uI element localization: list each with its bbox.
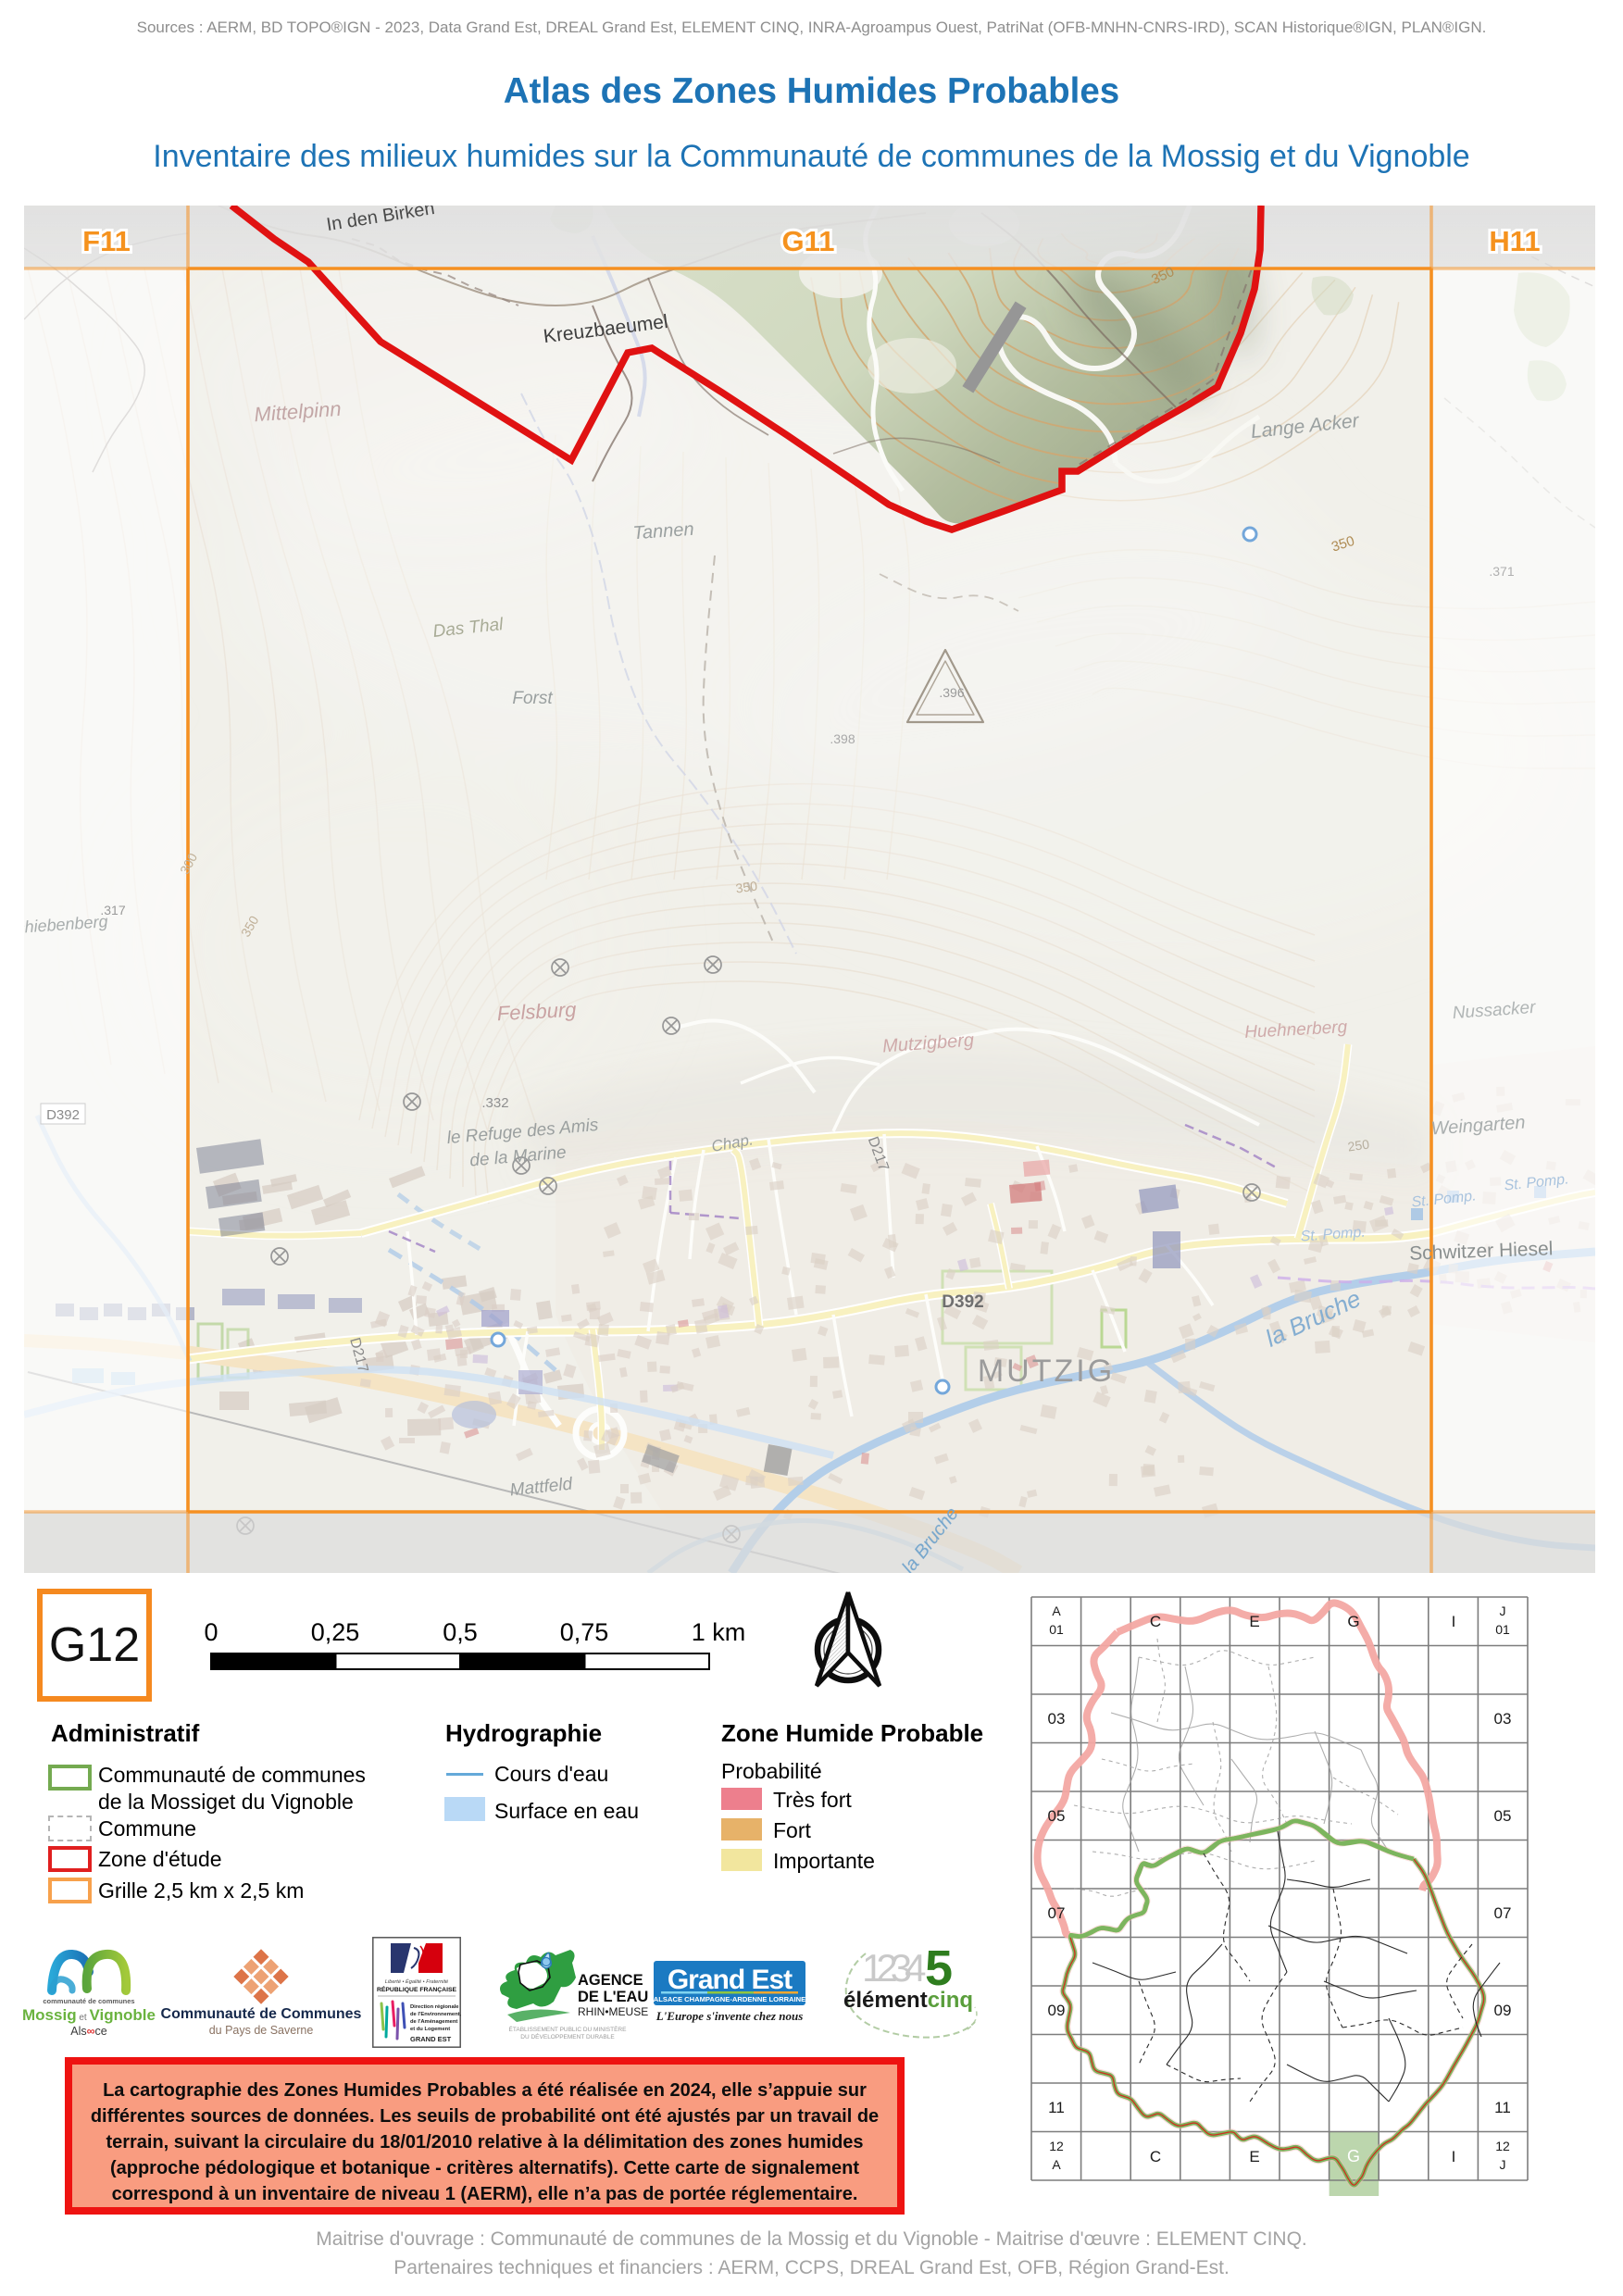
svg-text:350: 350 xyxy=(735,878,759,895)
svg-text:01: 01 xyxy=(1495,1622,1510,1637)
svg-text:J: J xyxy=(1500,2157,1506,2172)
svg-text:12: 12 xyxy=(1049,2139,1064,2153)
svg-text:L'Europe s'invente chez nous: L'Europe s'invente chez nous xyxy=(655,2009,804,2023)
svg-text:GRAND EST: GRAND EST xyxy=(410,2035,452,2043)
svg-text:05: 05 xyxy=(1048,1807,1066,1825)
svg-text:11: 11 xyxy=(1494,2099,1511,2116)
svg-text:09: 09 xyxy=(1048,2002,1066,2019)
svg-text:Tannen: Tannen xyxy=(632,519,694,544)
svg-text:E: E xyxy=(1249,2148,1259,2165)
svg-text:12: 12 xyxy=(1495,2139,1510,2153)
svg-text:03: 03 xyxy=(1048,1710,1066,1728)
svg-text:RÉPUBLIQUE FRANÇAISE: RÉPUBLIQUE FRANÇAISE xyxy=(377,1985,457,1993)
svg-text:DU DÉVELOPPEMENT DURABLE: DU DÉVELOPPEMENT DURABLE xyxy=(520,2032,615,2040)
svg-text:0,5: 0,5 xyxy=(443,1618,478,1646)
svg-text:de l'Aménagement: de l'Aménagement xyxy=(410,2019,457,2025)
svg-text:RHIN•MEUSE: RHIN•MEUSE xyxy=(578,2005,648,2018)
svg-text:Direction régionale: Direction régionale xyxy=(410,2004,459,2010)
svg-text:C: C xyxy=(1150,2148,1161,2165)
svg-text:A: A xyxy=(1052,2157,1061,2172)
svg-text:03: 03 xyxy=(1494,1710,1512,1728)
svg-text:Forst: Forst xyxy=(512,689,553,708)
svg-text:0,25: 0,25 xyxy=(311,1618,360,1646)
svg-text:I: I xyxy=(1452,2148,1456,2165)
svg-text:D392: D392 xyxy=(46,1107,80,1123)
svg-text:A: A xyxy=(1052,1603,1061,1618)
svg-text:G11: G11 xyxy=(782,225,835,257)
svg-text:F11: F11 xyxy=(82,225,131,257)
svg-text:250: 250 xyxy=(1347,1136,1371,1154)
svg-text:0,75: 0,75 xyxy=(560,1618,609,1646)
svg-text:.398: .398 xyxy=(830,731,855,746)
svg-text:09: 09 xyxy=(1494,2002,1512,2019)
svg-text:G: G xyxy=(1347,2147,1360,2165)
svg-text:J: J xyxy=(1500,1603,1506,1618)
svg-text:de l'Environnement,: de l'Environnement, xyxy=(410,2012,461,2017)
svg-text:Liberté • Égalité • Fraternité: Liberté • Égalité • Fraternité xyxy=(385,1978,448,1985)
svg-text:07: 07 xyxy=(1048,1904,1066,1922)
svg-text:C: C xyxy=(1150,1613,1161,1630)
svg-text:Felsburg: Felsburg xyxy=(496,998,578,1025)
svg-text:ÉTABLISSEMENT PUBLIC DU MINIST: ÉTABLISSEMENT PUBLIC DU MINISTÈRE xyxy=(509,2025,628,2033)
svg-text:E: E xyxy=(1249,1613,1259,1630)
svg-text:1 km: 1 km xyxy=(692,1618,746,1646)
svg-text:ALSACE CHAMPAGNE-ARDENNE LORRA: ALSACE CHAMPAGNE-ARDENNE LORRAINE xyxy=(654,1995,805,2003)
svg-text:DE L'EAU: DE L'EAU xyxy=(578,1989,648,2005)
svg-text:.371: .371 xyxy=(1489,564,1514,579)
svg-text:Als∞ce: Als∞ce xyxy=(70,2025,107,2038)
svg-text:1234: 1234 xyxy=(862,1946,926,1990)
svg-text:MUTZIG: MUTZIG xyxy=(978,1354,1115,1389)
svg-text:communauté de communes: communauté de communes xyxy=(43,1997,134,2005)
svg-text:0: 0 xyxy=(204,1618,218,1646)
svg-text:07: 07 xyxy=(1494,1904,1512,1922)
svg-text:AGENCE: AGENCE xyxy=(578,1972,643,1989)
svg-text:01: 01 xyxy=(1049,1622,1064,1637)
svg-text:D392: D392 xyxy=(942,1292,983,1312)
svg-text:05: 05 xyxy=(1494,1807,1512,1825)
svg-text:.396: .396 xyxy=(939,685,964,700)
svg-text:I: I xyxy=(1452,1613,1456,1630)
svg-text:et du Logement: et du Logement xyxy=(410,2027,450,2032)
svg-text:.332: .332 xyxy=(481,1095,508,1111)
svg-text:du Pays de Saverne: du Pays de Saverne xyxy=(209,2024,314,2037)
svg-text:Mossig et Vignoble: Mossig et Vignoble xyxy=(22,2006,156,2024)
svg-text:H11: H11 xyxy=(1489,225,1540,257)
svg-text:11: 11 xyxy=(1048,2099,1065,2116)
svg-text:G: G xyxy=(1347,1613,1359,1630)
svg-text:Communauté de Communes: Communauté de Communes xyxy=(161,2006,362,2022)
svg-text:élémentcinq: élémentcinq xyxy=(843,1988,973,2013)
svg-text:Grand Est: Grand Est xyxy=(668,1965,793,1995)
